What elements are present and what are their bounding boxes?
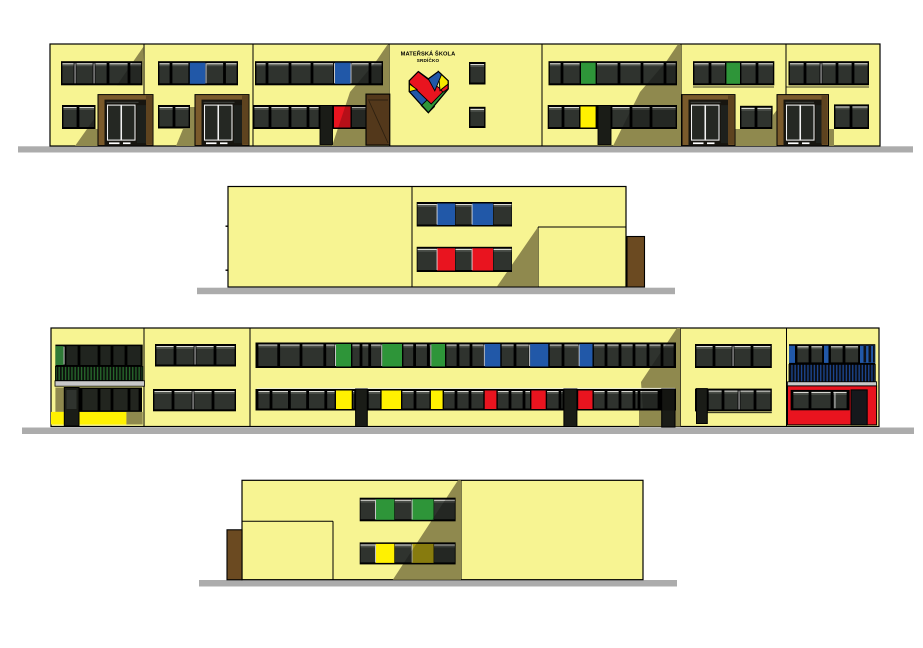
- svg-text:SRDÍČKO: SRDÍČKO: [417, 56, 440, 63]
- svg-text:MATEŘSKÁ ŠKOLA: MATEŘSKÁ ŠKOLA: [401, 50, 456, 58]
